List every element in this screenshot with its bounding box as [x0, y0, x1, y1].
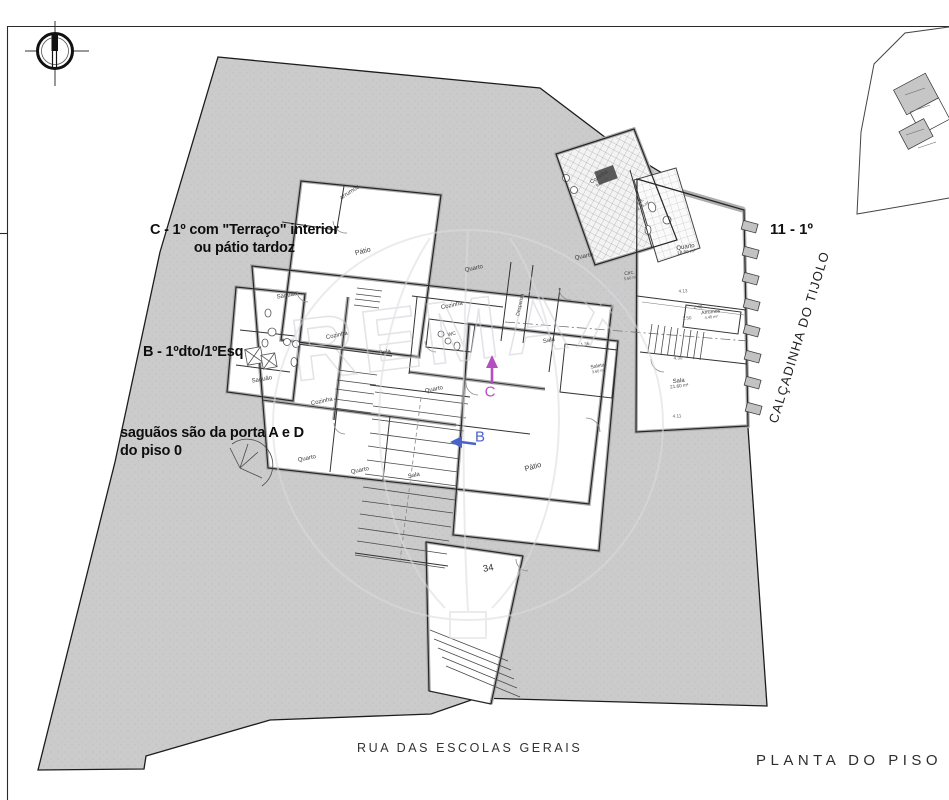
north-arrow-icon: [25, 21, 89, 86]
note-unit-b: B - 1ºdto/1ºEsq: [143, 343, 243, 361]
location-inset-map: [857, 27, 949, 214]
note-saguaos-line1: saguãos são da porta A e D: [120, 425, 304, 441]
marker-letter-b: B: [475, 429, 485, 446]
marker-letter-c: C: [485, 384, 496, 401]
note-unit-c-line2: ou pátio tardoz: [150, 239, 339, 257]
street-name-bottom: RUA DAS ESCOLAS GERAIS: [357, 741, 582, 755]
scanned-floor-plan-page: REMAX arrumosPátioSaguãoCozinha9.60 m²I.…: [0, 0, 949, 800]
note-saguaos-line2: do piso 0: [120, 443, 182, 459]
unit-number-right: 11 - 1º: [770, 221, 813, 238]
note-unit-c-line1: C - 1º com "Terraço" interior: [150, 222, 339, 238]
note-saguaos: saguãos são da porta A e D do piso 0: [120, 424, 304, 460]
drawing-title: PLANTA DO PISO 1: [756, 752, 949, 769]
floor-plan-canvas: REMAX: [0, 0, 949, 800]
note-unit-c: C - 1º com "Terraço" interior ou pátio t…: [150, 221, 339, 257]
house-number: 34: [482, 562, 494, 575]
note-unit-b-line1: B - 1ºdto/1ºEsq: [143, 344, 243, 360]
